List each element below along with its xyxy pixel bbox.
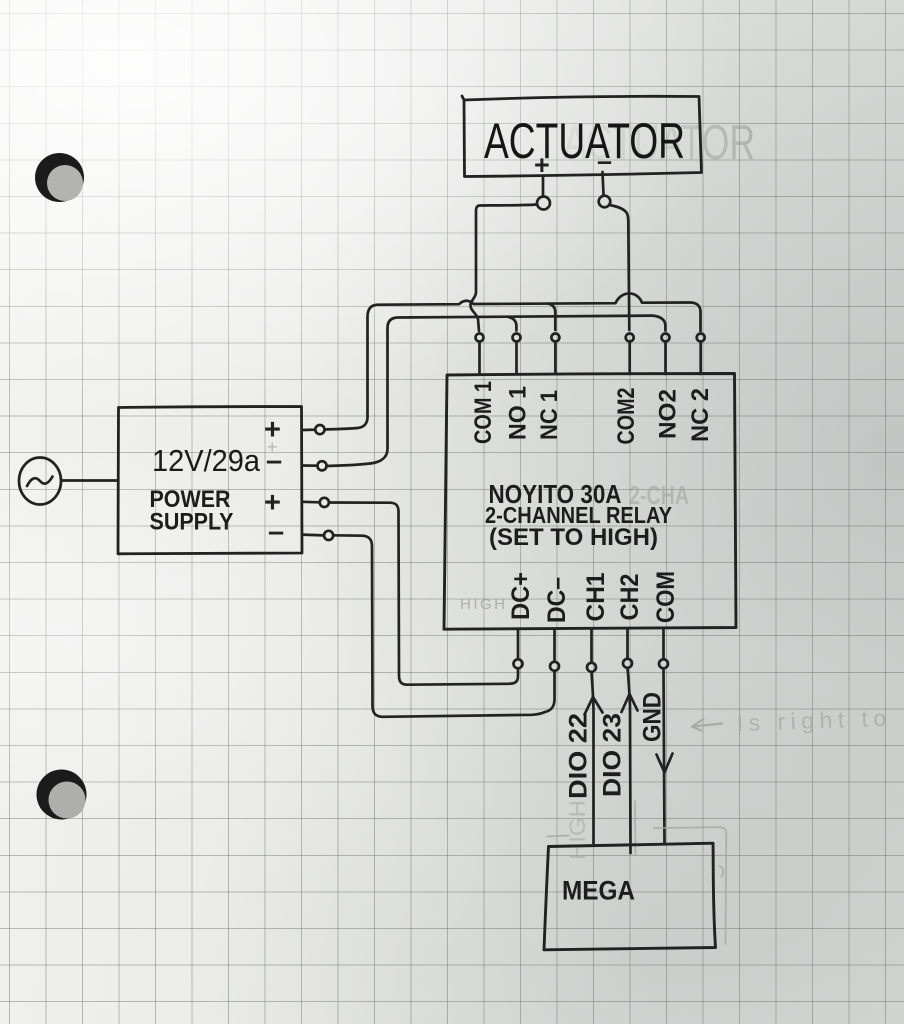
svg-text:DIO 23: DIO 23	[599, 713, 627, 797]
svg-text:NC 1: NC 1	[536, 390, 563, 440]
svg-text:CH2: CH2	[616, 574, 644, 621]
svg-text:COM 1: COM 1	[470, 381, 497, 444]
svg-text:GND: GND	[639, 692, 667, 742]
svg-text:(SET TO HIGH): (SET TO HIGH)	[489, 524, 658, 551]
svg-text:NO 1: NO 1	[505, 386, 532, 440]
svg-text:12V/29a: 12V/29a	[152, 443, 261, 478]
svg-text:COM: COM	[652, 571, 680, 623]
svg-text:DC–: DC–	[543, 577, 571, 623]
svg-text:–: –	[597, 146, 612, 176]
svg-text:DIO 22: DIO 22	[565, 713, 593, 799]
svg-text:Is right to: Is right to	[736, 705, 892, 736]
svg-text:–: –	[266, 445, 282, 477]
svg-text:MEGA: MEGA	[562, 876, 635, 906]
svg-text:DC+: DC+	[507, 572, 535, 620]
svg-text:HIGH: HIGH	[565, 800, 590, 860]
svg-text:–: –	[268, 516, 284, 548]
svg-text:CH1: CH1	[582, 572, 610, 621]
svg-text:+: +	[264, 487, 281, 519]
svg-text:SUPPLY: SUPPLY	[150, 509, 234, 536]
svg-text:NO2: NO2	[655, 389, 682, 439]
svg-text:NC 2: NC 2	[687, 388, 714, 442]
svg-text:COM2: COM2	[613, 388, 640, 445]
svg-text:HIGH: HIGH	[460, 596, 508, 613]
svg-text:ACTUATOR: ACTUATOR	[484, 113, 685, 169]
